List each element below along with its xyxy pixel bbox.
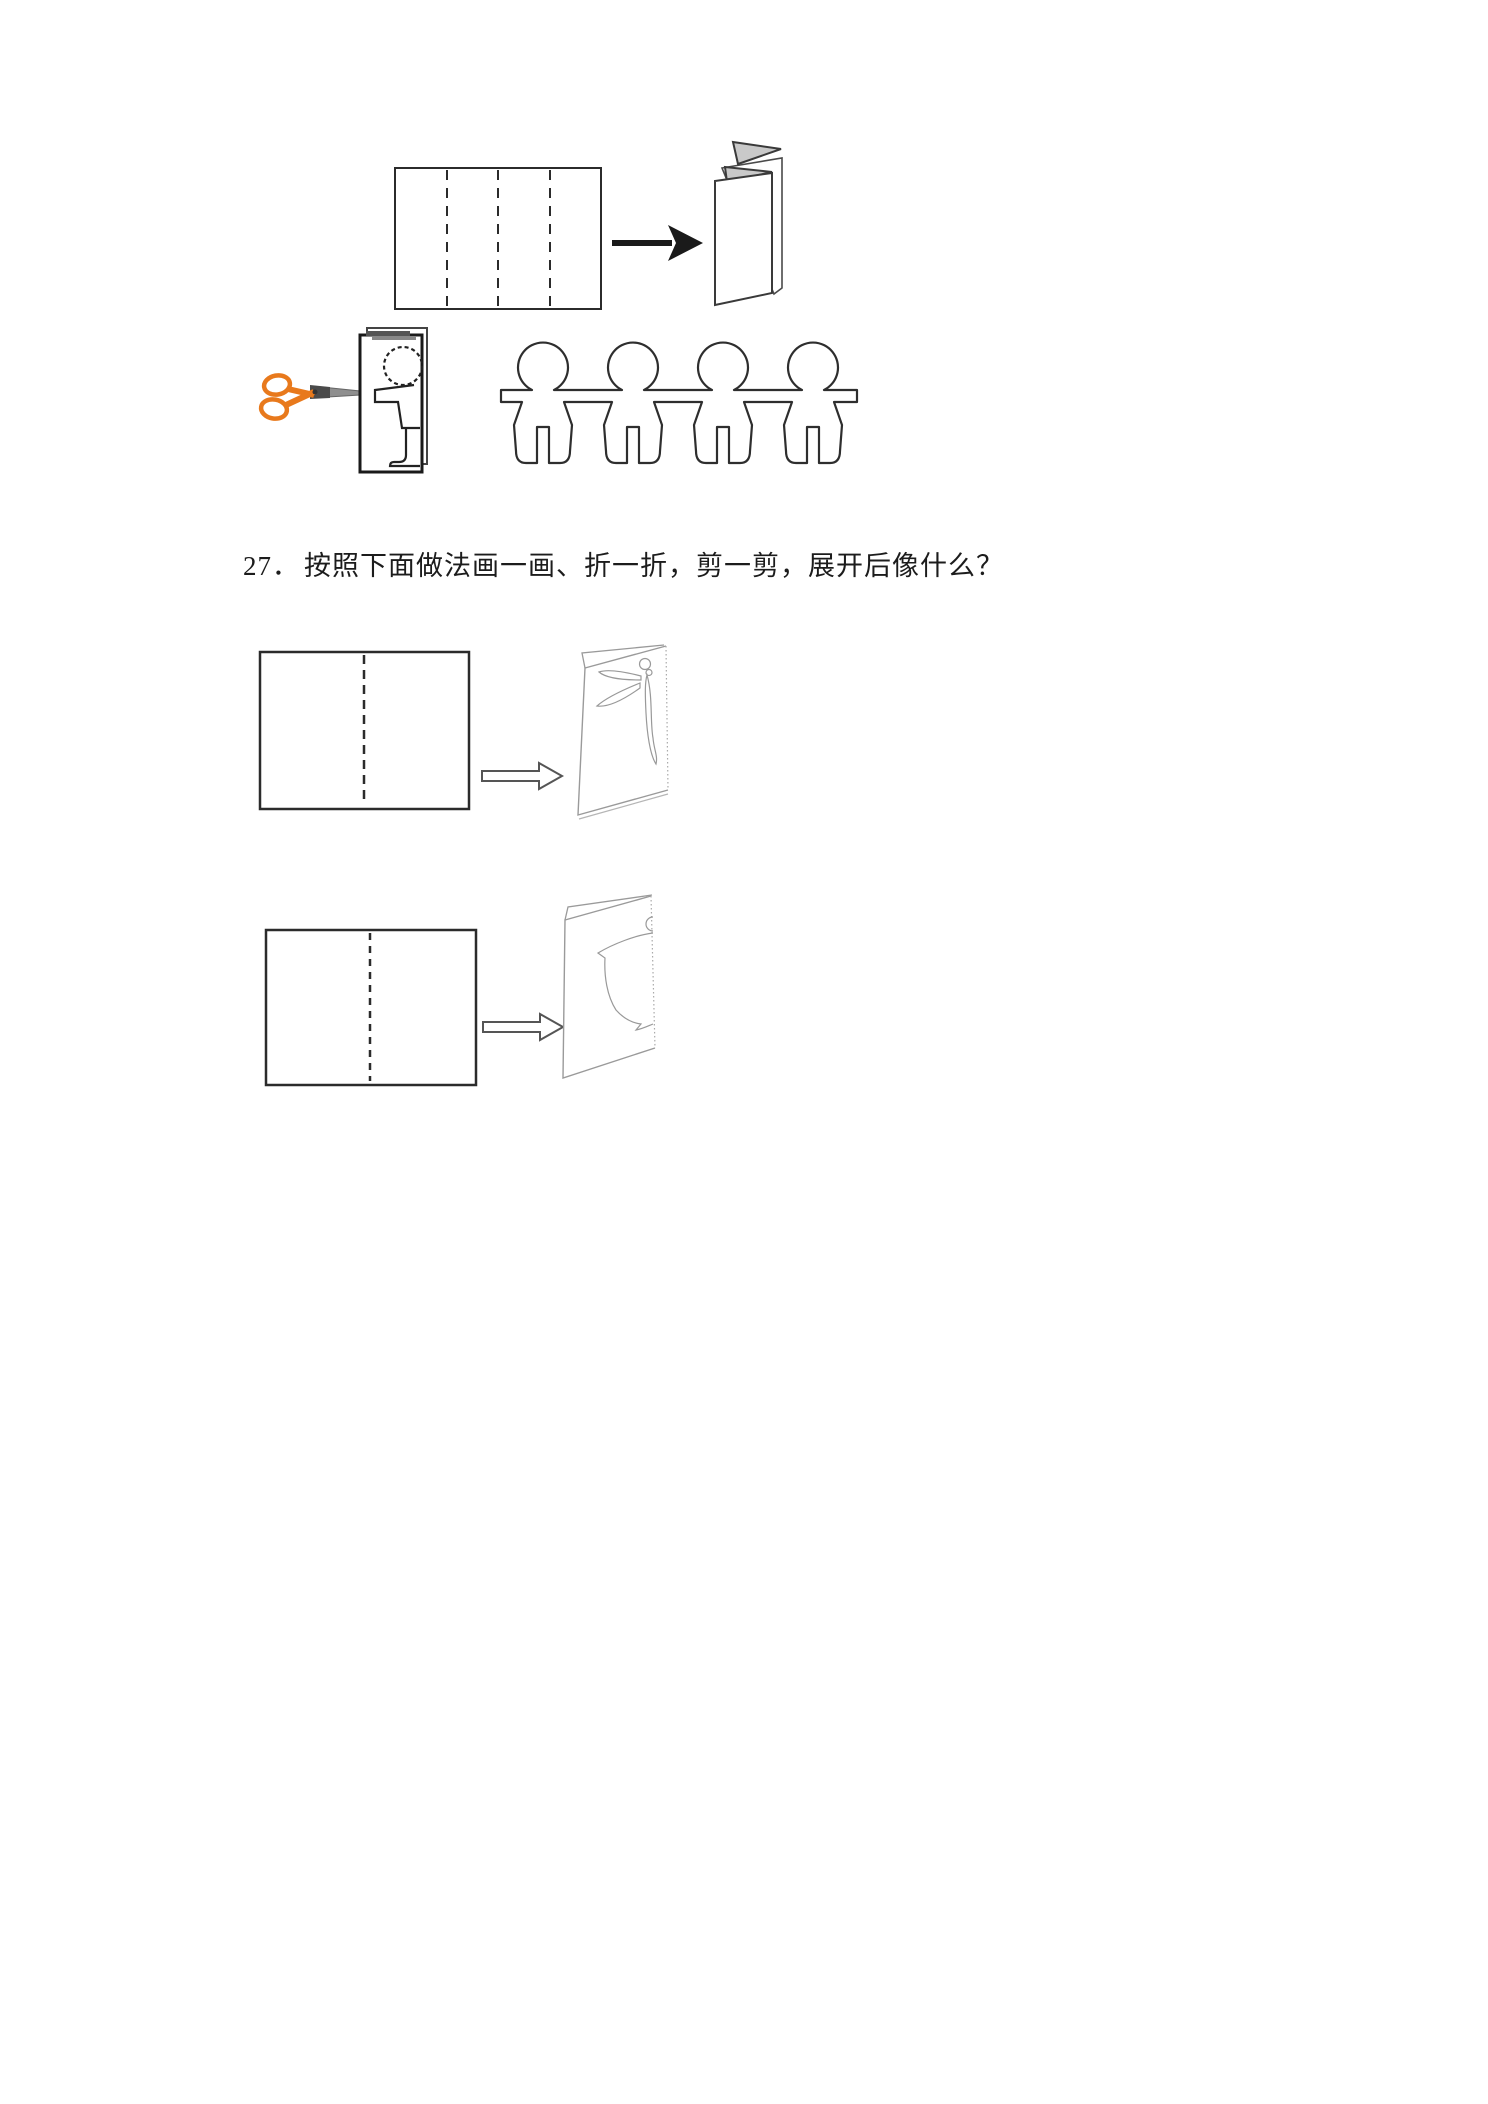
worksheet-page: 27．按照下面做法画一画、折一折，剪一剪，展开后像什么？ (0, 0, 1488, 2104)
front-sheet (563, 896, 655, 1078)
scissors-handle-upper (263, 373, 292, 396)
fold-edge-bar (366, 331, 410, 336)
figure-accordion-folded-paper (698, 116, 790, 316)
hollow-arrow-outline (482, 763, 562, 789)
doll-chain-outline (501, 343, 857, 463)
front-sheet (578, 646, 668, 815)
question-number: 27． (243, 551, 300, 581)
front-sheet (715, 173, 772, 305)
hollow-arrow-right-icon (480, 761, 565, 791)
hollow-arrow-right-icon (481, 1012, 566, 1042)
fold-edge-bar (372, 336, 416, 340)
paper-outline (266, 930, 476, 1085)
figure-cut-template-paper (353, 322, 435, 477)
figure-q27-sheet-2 (263, 928, 481, 1089)
figure-q27-sheet-1 (258, 650, 472, 812)
front-sheet (360, 335, 422, 472)
hollow-arrow-outline (483, 1014, 563, 1040)
arrow-right-icon (610, 222, 705, 264)
scissors-icon (256, 364, 364, 422)
scissors-pivot (313, 390, 318, 395)
question-27: 27．按照下面做法画一画、折一折，剪一剪，展开后像什么？ (243, 544, 1004, 583)
question-text: 按照下面做法画一画、折一折，剪一剪，展开后像什么？ (304, 551, 1004, 581)
figure-paper-doll-chain (496, 333, 864, 469)
dragonfly-head (640, 659, 651, 670)
figure-q27-folded-dragonfly (574, 638, 674, 830)
arrow-shaft (612, 240, 672, 246)
figure-fold-sheet (394, 167, 603, 312)
scissors-handle-lower (260, 397, 289, 420)
figure-q27-folded-vase (558, 886, 664, 1088)
